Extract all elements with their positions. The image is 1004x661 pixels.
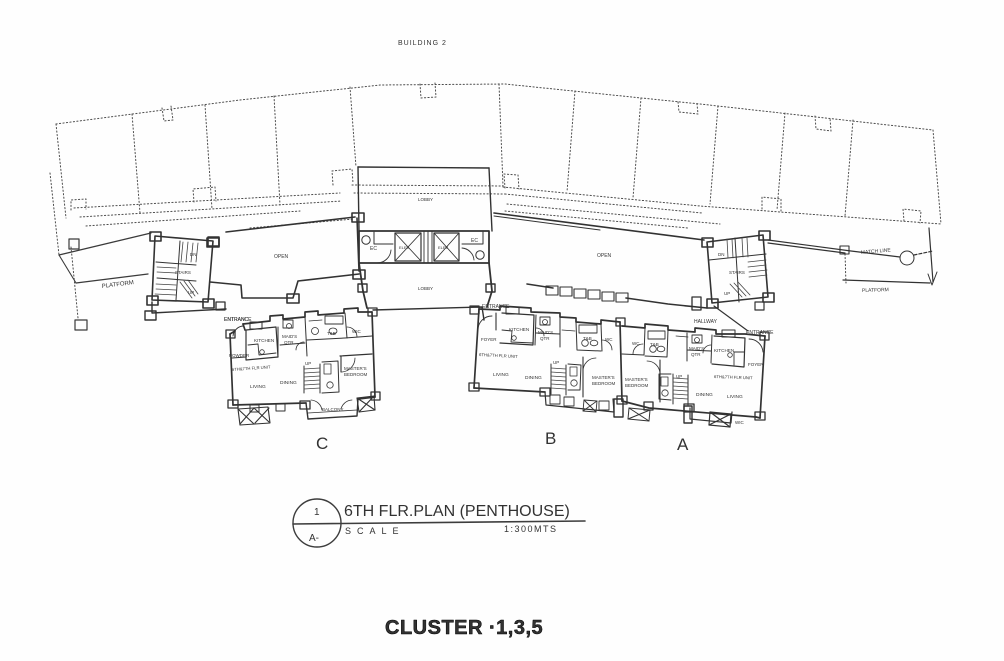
svg-text:DN: DN (718, 252, 725, 257)
svg-text:UP: UP (305, 361, 311, 366)
svg-text:6TH FLR.PLAN (PENTHOUSE): 6TH FLR.PLAN (PENTHOUSE) (344, 503, 570, 520)
svg-text:WC: WC (632, 341, 640, 346)
svg-text:T&B: T&B (650, 342, 659, 347)
svg-text:LIVING: LIVING (250, 384, 266, 390)
svg-text:FOYER: FOYER (481, 337, 497, 342)
svg-text:ELEV: ELEV (438, 245, 449, 250)
svg-text:BALCONY: BALCONY (322, 407, 344, 412)
svg-text:WC: WC (605, 337, 613, 342)
svg-text:DINING: DINING (280, 380, 297, 386)
svg-text:T&B: T&B (327, 331, 336, 336)
svg-text:UP: UP (676, 374, 682, 379)
svg-text:C: C (316, 434, 328, 453)
svg-text:ENTRANCE: ENTRANCE (224, 317, 252, 323)
svg-text:EC: EC (370, 246, 377, 252)
svg-text:OPEN: OPEN (597, 253, 612, 259)
svg-text:OPEN: OPEN (274, 254, 289, 260)
svg-text:MATCH LINE: MATCH LINE (861, 247, 892, 256)
svg-text:BUILDING 2: BUILDING 2 (398, 40, 447, 47)
svg-text:KITCHEN: KITCHEN (509, 327, 529, 332)
svg-text:QTR: QTR (691, 352, 701, 357)
svg-text:MASTER'S: MASTER'S (344, 366, 367, 371)
svg-text:QTR: QTR (284, 340, 294, 345)
svg-text:DINING: DINING (525, 375, 542, 381)
svg-text:MASTER'S: MASTER'S (625, 377, 648, 382)
svg-text:MAID'S: MAID'S (538, 330, 553, 335)
svg-text:UP: UP (553, 360, 559, 365)
svg-text:CLUSTER ·1,3,5: CLUSTER ·1,3,5 (385, 617, 543, 639)
svg-text:DINING: DINING (696, 392, 713, 398)
svg-text:ELEV: ELEV (399, 245, 410, 250)
svg-text:A: A (677, 435, 689, 454)
svg-text:MAID'S: MAID'S (282, 334, 297, 339)
svg-text:EC: EC (471, 238, 478, 244)
svg-text:QTR: QTR (540, 336, 550, 341)
svg-text:LOBBY: LOBBY (418, 286, 433, 291)
svg-text:A-: A- (309, 533, 319, 544)
svg-text:6TH&7TH FLR UNIT: 6TH&7TH FLR UNIT (232, 364, 271, 372)
svg-text:1: 1 (314, 507, 320, 518)
svg-text:FOYER: FOYER (748, 362, 764, 367)
svg-text:6TH&7TH FLR UNIT: 6TH&7TH FLR UNIT (714, 374, 753, 380)
svg-text:SCALE: SCALE (345, 526, 405, 536)
svg-text:WIC: WIC (352, 329, 361, 334)
svg-text:DN: DN (190, 252, 197, 257)
svg-text:STAIRS: STAIRS (175, 270, 191, 275)
svg-text:LOBBY: LOBBY (418, 197, 433, 202)
svg-text:BEDROOM: BEDROOM (344, 372, 368, 377)
svg-text:HALLWAY: HALLWAY (694, 319, 718, 325)
svg-text:PLATFORM: PLATFORM (102, 280, 135, 290)
svg-text:UP: UP (188, 290, 194, 295)
svg-text:KITCHEN: KITCHEN (254, 338, 274, 343)
svg-text:PLATFORM: PLATFORM (862, 287, 889, 294)
svg-text:MAID'S: MAID'S (689, 346, 704, 351)
svg-text:KITCHEN: KITCHEN (714, 348, 734, 353)
svg-text:LIVING: LIVING (727, 394, 743, 400)
svg-text:UP: UP (724, 291, 730, 296)
svg-text:T&B: T&B (583, 336, 592, 341)
svg-text:STAIRS: STAIRS (729, 270, 745, 275)
svg-text:BEDROOM: BEDROOM (625, 383, 649, 388)
svg-text:MASTER'S: MASTER'S (592, 375, 615, 380)
svg-text:6TH&7TH FLR UNIT: 6TH&7TH FLR UNIT (479, 352, 518, 359)
svg-text:1:300MTS: 1:300MTS (504, 524, 558, 534)
svg-text:B: B (545, 429, 556, 448)
svg-text:BEDROOM: BEDROOM (592, 381, 616, 386)
svg-text:WIC: WIC (735, 420, 744, 425)
svg-text:LIVING: LIVING (493, 372, 509, 378)
svg-text:POWDER: POWDER (229, 353, 250, 358)
